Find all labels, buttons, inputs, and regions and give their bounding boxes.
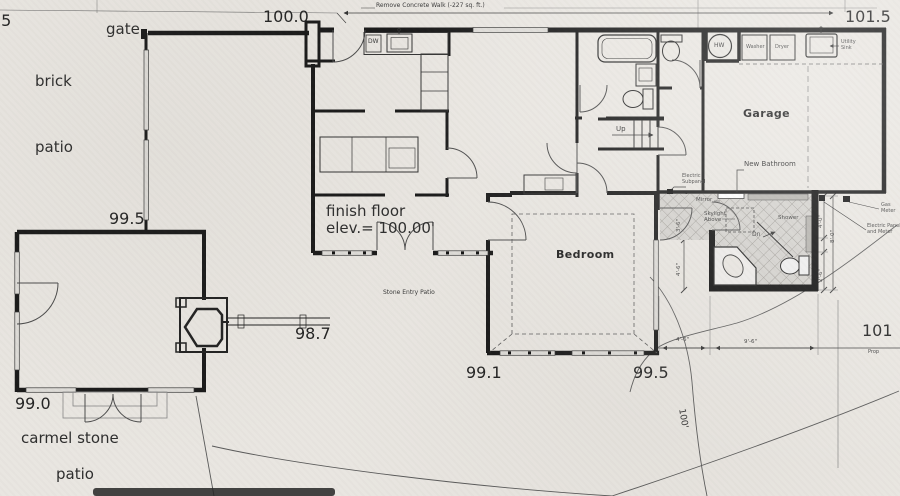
elevation-101-5: 101.5	[845, 8, 891, 26]
dim-4-0: 4'-0"	[818, 215, 824, 228]
subpanel-symbol	[667, 189, 673, 194]
elevation-99-5-left: 99.5	[109, 210, 145, 228]
dim-8-0: 8'-0"	[830, 230, 836, 243]
window	[144, 50, 149, 130]
label-new-bathroom: New Bathroom	[744, 161, 796, 169]
label-patio-upper: patio	[35, 139, 73, 156]
dim-2-6: 2'-6"	[818, 269, 824, 282]
label-dryer: Dryer	[775, 45, 789, 51]
room-label-garage: Garage	[743, 108, 790, 120]
elevation-98-7: 98.7	[295, 325, 331, 343]
label-water-heater: HW	[714, 43, 724, 50]
room-label-bedroom: Bedroom	[556, 249, 615, 261]
elevation-99-5-right: 99.5	[633, 364, 669, 382]
label-stairs-up: Up	[616, 126, 626, 134]
floor-plan-canvas: .5 gate 100.0 Remove Concrete Walk (-227…	[0, 0, 900, 496]
window	[654, 240, 659, 330]
window	[144, 140, 149, 220]
kitchen-counter-side	[421, 54, 448, 111]
elevation-100-0: 100.0	[263, 8, 309, 26]
label-dishwasher: DW	[368, 39, 379, 46]
fireplace-symbol	[176, 298, 229, 352]
lower-right-curve	[612, 391, 899, 496]
elevation-partial: .5	[0, 12, 11, 30]
plan-drawing	[0, 0, 900, 496]
gas-meter-symbol	[843, 196, 850, 202]
toilet-symbol-3	[781, 258, 800, 274]
label-gate: gate	[106, 21, 140, 38]
label-utility-sink-2: Sink	[841, 46, 852, 52]
builtin-counter	[320, 137, 418, 172]
toilet-tank	[643, 89, 653, 109]
toilet-symbol	[623, 91, 643, 108]
label-skylight-2: Above	[704, 217, 721, 223]
label-stairs-dn: Dn	[752, 232, 760, 239]
label-washer: Washer	[746, 45, 765, 51]
toilet-symbol-2	[663, 41, 680, 61]
window	[15, 252, 19, 294]
label-brick: brick	[35, 73, 72, 90]
mirror-symbol	[718, 194, 744, 199]
window-mullions	[332, 251, 637, 354]
label-carmel-stone: carmel stone	[21, 430, 119, 447]
bathroom-fixtures	[598, 35, 682, 109]
shelf-strip	[748, 194, 808, 200]
bathtub-symbol	[598, 35, 656, 62]
label-gas-meter-2: Meter	[881, 209, 895, 215]
note-remove-concrete-walk: Remove Concrete Walk (-227 sq. ft.)	[376, 3, 485, 10]
dim-4-6-bottom: 4'-6"	[676, 337, 689, 343]
lower-left-slant	[196, 396, 214, 496]
dim-4-6-west: 4'-6"	[676, 263, 682, 276]
elevation-99-1: 99.1	[466, 364, 502, 382]
scanned-floor-plan: { "colors": { "paper": "#e9e6e1", "ink":…	[0, 0, 900, 496]
window	[15, 312, 19, 370]
utility-sink-symbol	[806, 34, 837, 57]
elevation-101: 101	[862, 322, 893, 340]
dim-9-6-bottom: 9'-6"	[744, 339, 757, 345]
entry-pilaster	[306, 22, 319, 66]
label-property-line: Prop	[868, 350, 879, 356]
electric-panel-symbol	[819, 195, 825, 201]
label-electric-subpanel-2: Subpanel	[682, 180, 705, 186]
bedroom-ceiling	[490, 214, 657, 353]
label-mirror: Mirror	[696, 197, 712, 203]
elevation-99-0: 99.0	[15, 395, 51, 413]
finish-floor-line1: finish floor	[326, 203, 405, 220]
scan-artifact	[93, 488, 335, 496]
label-stone-entry-patio: Stone Entry Patio	[383, 290, 435, 297]
garage-lines	[739, 64, 883, 188]
label-patio-lower: patio	[56, 466, 94, 483]
label-electric-panel-2: and Meter	[867, 230, 892, 236]
label-shower: Shower	[778, 215, 799, 221]
dim-3-6: 3'-6"	[676, 219, 682, 232]
finish-floor-line2: elev.= 100.00'	[326, 220, 435, 237]
window	[473, 28, 548, 33]
